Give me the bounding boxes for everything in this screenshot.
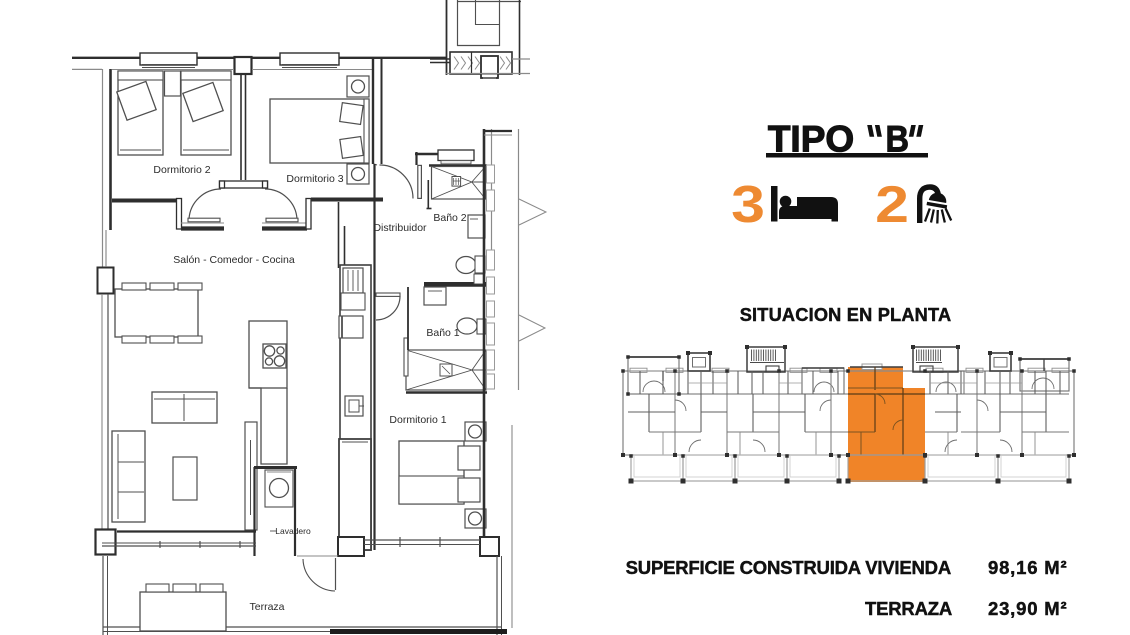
- svg-text:23,90 M²: 23,90 M²: [988, 598, 1067, 619]
- svg-text:3: 3: [731, 175, 765, 233]
- svg-text:Distribuidor: Distribuidor: [373, 222, 427, 234]
- svg-text:98,16 M²: 98,16 M²: [988, 557, 1067, 578]
- svg-text:Salón - Comedor - Cocina: Salón - Comedor - Cocina: [173, 254, 295, 266]
- svg-text:TERRAZA: TERRAZA: [865, 598, 952, 619]
- svg-text:Dormitorio 1: Dormitorio 1: [389, 414, 446, 426]
- svg-text:SUPERFICIE CONSTRUIDA VIVIENDA: SUPERFICIE CONSTRUIDA VIVIENDA: [626, 557, 951, 578]
- svg-text:Terraza: Terraza: [249, 601, 284, 613]
- svg-text:Dormitorio 2: Dormitorio 2: [153, 164, 210, 176]
- svg-text:Dormitorio 3: Dormitorio 3: [286, 173, 343, 185]
- svg-text:Baño 2: Baño 2: [433, 212, 466, 224]
- svg-text:Baño 1: Baño 1: [426, 327, 459, 339]
- svg-text:2: 2: [875, 175, 909, 233]
- svg-text:Lavadero: Lavadero: [275, 526, 311, 536]
- svg-text:SITUACION EN PLANTA: SITUACION EN PLANTA: [740, 305, 952, 325]
